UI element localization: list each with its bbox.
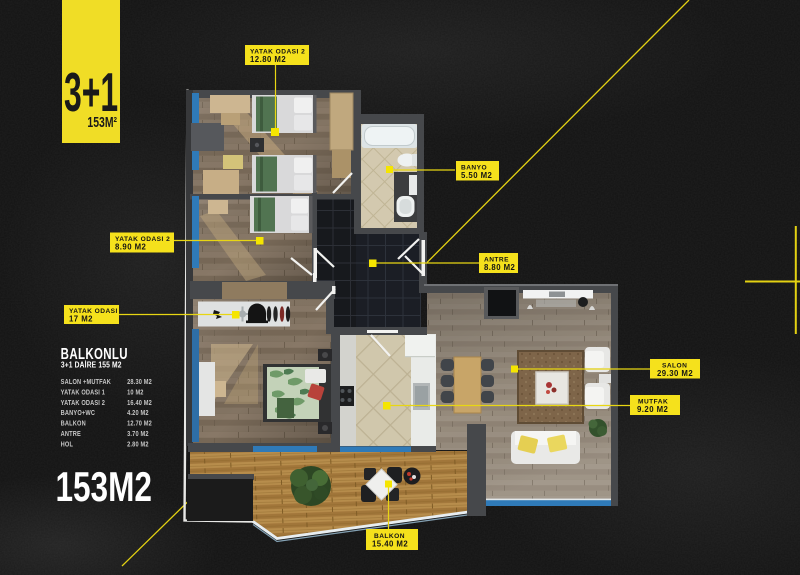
- svg-text:16.40 M2: 16.40 M2: [127, 399, 152, 407]
- svg-text:YATAK ODASI 2: YATAK ODASI 2: [61, 399, 106, 407]
- svg-text:4.20 M2: 4.20 M2: [127, 410, 149, 418]
- svg-text:12.80 M2: 12.80 M2: [250, 55, 286, 64]
- svg-text:9.20 M2: 9.20 M2: [637, 405, 669, 414]
- svg-text:ANTRE: ANTRE: [61, 431, 81, 439]
- svg-text:HOL: HOL: [61, 441, 73, 449]
- svg-text:SALON +MUTFAK: SALON +MUTFAK: [61, 379, 112, 387]
- svg-text:YATAK ODASI 1: YATAK ODASI 1: [61, 389, 106, 397]
- svg-text:3.70 M2: 3.70 M2: [127, 431, 149, 439]
- svg-text:3+1 DAİRE 155 M2: 3+1 DAİRE 155 M2: [61, 360, 122, 370]
- svg-text:28.30 M2: 28.30 M2: [127, 379, 152, 387]
- svg-text:29.30 M2: 29.30 M2: [657, 369, 693, 378]
- svg-text:12.70 M2: 12.70 M2: [127, 420, 152, 428]
- svg-text:15.40 M2: 15.40 M2: [372, 540, 408, 549]
- svg-text:BANYO+WC: BANYO+WC: [61, 410, 96, 418]
- svg-text:10 M2: 10 M2: [127, 389, 144, 397]
- svg-text:2.80 M2: 2.80 M2: [127, 441, 149, 449]
- svg-text:8.90 M2: 8.90 M2: [115, 243, 147, 252]
- svg-text:153M2: 153M2: [55, 464, 151, 510]
- svg-text:8.80 M2: 8.80 M2: [484, 263, 516, 272]
- svg-text:153M²: 153M²: [87, 114, 117, 130]
- svg-text:17 M2: 17 M2: [69, 315, 93, 324]
- svg-text:BALKON: BALKON: [61, 420, 86, 428]
- svg-text:5.50 M2: 5.50 M2: [461, 171, 493, 180]
